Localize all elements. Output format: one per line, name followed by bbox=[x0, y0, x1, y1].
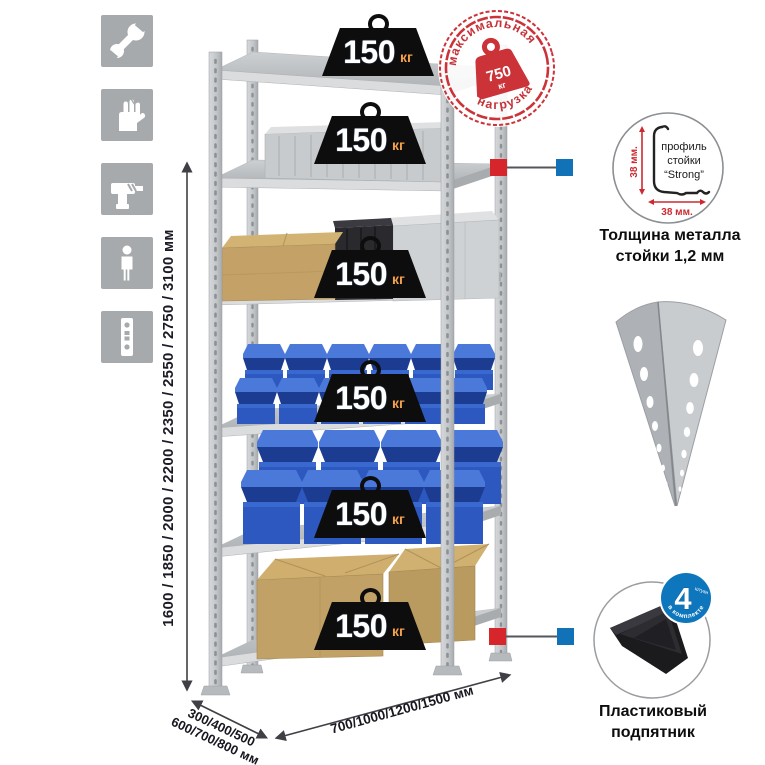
profile-detail-circle: 38 мм. 38 мм. профиль стойки “Strong” bbox=[612, 112, 724, 224]
profile-labels: профиль стойки “Strong” bbox=[661, 141, 707, 181]
svg-text:“Strong”: “Strong” bbox=[664, 169, 704, 181]
foot-caption: Пластиковый подпятник bbox=[588, 702, 718, 744]
profile-dim-horizontal: 38 мм. bbox=[661, 207, 693, 218]
perforated-profile-icon bbox=[101, 311, 153, 363]
shelf-load-badge: 150кг bbox=[312, 236, 428, 298]
height-dimension-label: 1600 / 1850 / 2000 / 2200 / 2350 / 2550 … bbox=[160, 163, 180, 693]
profile-dim-vertical: 38 мм. bbox=[629, 146, 640, 178]
angle-post-image bbox=[600, 296, 750, 521]
svg-text:стойки: стойки bbox=[667, 155, 701, 167]
product-infographic: 1600 / 1850 / 2000 / 2200 / 2350 / 2550 … bbox=[0, 0, 765, 765]
profile-callout-blue-marker bbox=[556, 159, 573, 176]
foot-callout-blue-marker bbox=[557, 628, 574, 645]
shelf-load-badge: 150кг bbox=[312, 476, 428, 538]
shelf-load-badge: 150кг bbox=[312, 102, 428, 164]
gloves-icon bbox=[101, 89, 153, 141]
shelf-load-badge: 150кг bbox=[312, 360, 428, 422]
person-icon bbox=[101, 237, 153, 289]
shelf-load-badge: 150кг bbox=[312, 588, 428, 650]
profile-caption: Толщина металла стойки 1,2 мм bbox=[590, 226, 750, 268]
quantity-badge: 4 штуки в комплекте bbox=[658, 570, 714, 626]
svg-text:профиль: профиль bbox=[661, 141, 707, 153]
wrench-icon bbox=[101, 15, 153, 67]
drill-icon bbox=[101, 163, 153, 215]
